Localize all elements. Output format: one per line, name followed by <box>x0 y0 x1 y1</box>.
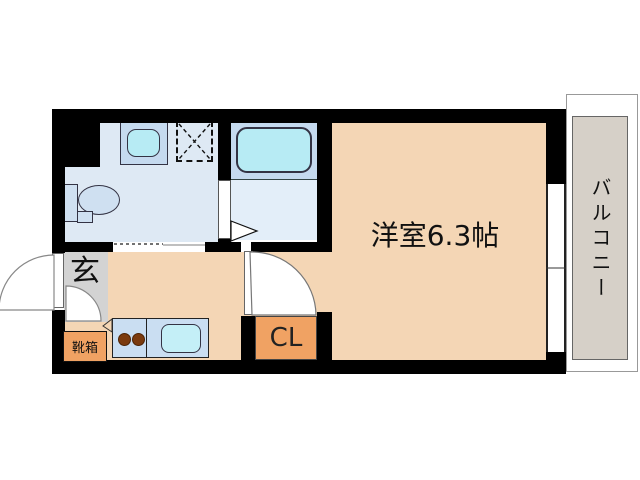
wall-washroom-bottom-mid <box>205 242 241 252</box>
stove-burner-icon <box>132 333 145 346</box>
front-door-leaf <box>52 253 64 308</box>
bathtub-icon <box>236 127 312 173</box>
washbasin-bowl-icon <box>127 129 160 157</box>
closet: CL <box>255 316 317 360</box>
wall-washroom-bath-upper <box>218 109 231 180</box>
wall-bath-mainroom <box>317 109 332 252</box>
main-room-label: 洋室6.3帖 <box>357 222 513 250</box>
sliding-door <box>113 242 205 252</box>
toilet-base-icon <box>77 211 93 223</box>
balcony-label: バルコニー <box>572 134 628 344</box>
floor-plan: 靴箱 CL 洋室6.3帖 玄 バルコニー <box>0 0 640 480</box>
shoe-box-label: 靴箱 <box>72 337 98 356</box>
washer-pan-icon <box>176 121 213 162</box>
room-door-leaf <box>244 251 253 315</box>
balcony-window <box>546 184 566 352</box>
wall-closet-left <box>241 316 255 360</box>
entrance-label: 玄 <box>70 257 100 287</box>
kitchen-counter-divider <box>146 318 147 358</box>
front-door-swing-arc <box>0 255 54 310</box>
toilet-tank-icon <box>63 184 78 222</box>
wall-top-left-mass <box>52 109 100 167</box>
stove-burner-icon <box>118 333 131 346</box>
bath-door-leaf <box>218 180 231 239</box>
shoe-box: 靴箱 <box>63 331 107 362</box>
closet-label: CL <box>270 323 303 353</box>
wall-washroom-bottom-left <box>52 242 113 252</box>
kitchen-sink-icon <box>161 324 201 353</box>
wall-right-upper <box>546 109 566 185</box>
wall-top <box>52 109 566 123</box>
wall-right-lower <box>546 352 566 374</box>
wall-bottom <box>52 360 566 374</box>
wall-closet-right <box>317 312 332 360</box>
